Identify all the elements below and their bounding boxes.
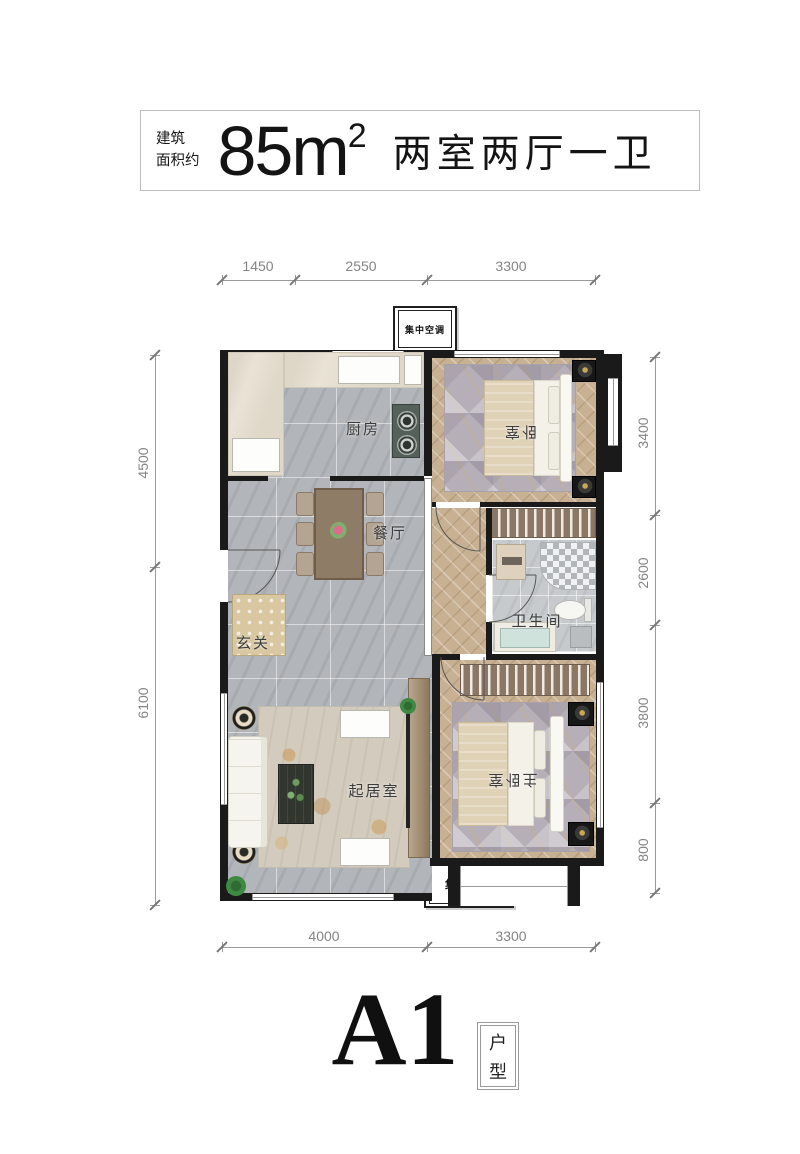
floorplan-sheet: 建筑 面积约 85m2 两室两厅一卫 1450 2550 3300 4000 3… bbox=[0, 0, 800, 1154]
dim-right-4: 800 bbox=[635, 820, 651, 880]
dim-right-1: 3400 bbox=[635, 403, 651, 463]
washer-slot bbox=[502, 557, 522, 565]
dining-chair bbox=[366, 492, 384, 516]
nightstand bbox=[572, 476, 596, 498]
table-flowers bbox=[330, 522, 348, 540]
dim-bottom-1: 4000 bbox=[294, 928, 354, 944]
dim-line-left bbox=[155, 355, 156, 905]
ottoman bbox=[340, 838, 390, 866]
room-label-kitchen: 厨房 bbox=[323, 418, 403, 439]
dim-top-1: 1450 bbox=[228, 258, 288, 274]
area-unit: m bbox=[291, 112, 347, 190]
dim-bottom-2: 3300 bbox=[481, 928, 541, 944]
sofa bbox=[228, 736, 268, 848]
area-number: 85 bbox=[218, 112, 292, 190]
unit-type-char1: 户 bbox=[489, 1029, 507, 1055]
dining-chair bbox=[296, 492, 314, 516]
shower-area bbox=[540, 542, 596, 590]
kitchen-sink bbox=[338, 356, 400, 384]
plant bbox=[226, 876, 246, 896]
pillow bbox=[534, 730, 546, 770]
ottoman bbox=[340, 710, 390, 738]
unit-type-box: 户 型 bbox=[477, 1022, 519, 1090]
coffee-table bbox=[278, 764, 314, 824]
nightstand bbox=[568, 822, 594, 846]
dim-top-3: 3300 bbox=[481, 258, 541, 274]
dim-left-2: 6100 bbox=[135, 673, 151, 733]
tv bbox=[406, 706, 410, 828]
dim-right-3: 3800 bbox=[635, 683, 651, 743]
side-table bbox=[232, 706, 256, 730]
room-label-living: 起居室 bbox=[324, 780, 424, 801]
hvac-badge-top: 集中空调 bbox=[393, 306, 457, 352]
title-banner: 建筑 面积约 85m2 两室两厅一卫 bbox=[140, 110, 700, 191]
pillow bbox=[548, 386, 560, 424]
bathroom-basin bbox=[500, 628, 550, 648]
floorplan: 厨房 卧室 餐厅 卫生间 玄关 起居室 主卧室 bbox=[220, 350, 622, 912]
area-exponent: 2 bbox=[348, 117, 367, 155]
room-label-dining: 餐厅 bbox=[350, 522, 430, 543]
area-prefix-line1: 建筑 bbox=[156, 129, 200, 151]
nightstand bbox=[568, 702, 594, 726]
unit-type-char2: 型 bbox=[489, 1058, 507, 1084]
area-prefix: 建筑 面积约 bbox=[156, 129, 200, 173]
nightstand bbox=[572, 360, 596, 382]
kitchen-cabinet bbox=[404, 355, 422, 385]
room-label-bathroom: 卫生间 bbox=[487, 610, 587, 631]
room-label-entry: 玄关 bbox=[220, 632, 286, 653]
unit-name: A1 bbox=[280, 978, 510, 1082]
room-label-master-bedroom: 主卧室 bbox=[462, 770, 562, 791]
washing-machine bbox=[496, 544, 526, 580]
kitchen-appliance bbox=[232, 438, 280, 472]
dim-line-top bbox=[222, 280, 595, 281]
room-label-bedroom: 卧室 bbox=[480, 422, 560, 443]
dim-left-1: 4500 bbox=[135, 433, 151, 493]
dining-chair bbox=[366, 552, 384, 576]
area-prefix-line2: 面积约 bbox=[156, 151, 200, 173]
dim-line-bottom bbox=[222, 947, 595, 948]
hvac-badge-top-label: 集中空调 bbox=[398, 310, 452, 348]
dining-chair bbox=[296, 522, 314, 546]
dining-chair bbox=[296, 552, 314, 576]
layout-summary: 两室两厅一卫 bbox=[393, 123, 657, 179]
plant bbox=[400, 698, 416, 714]
dim-right-2: 2600 bbox=[635, 543, 651, 603]
bedroom-headboard bbox=[560, 374, 572, 482]
area-value: 85m2 bbox=[218, 116, 367, 186]
unit-type-label: 户 型 bbox=[480, 1025, 516, 1087]
dim-top-2: 2550 bbox=[331, 258, 391, 274]
